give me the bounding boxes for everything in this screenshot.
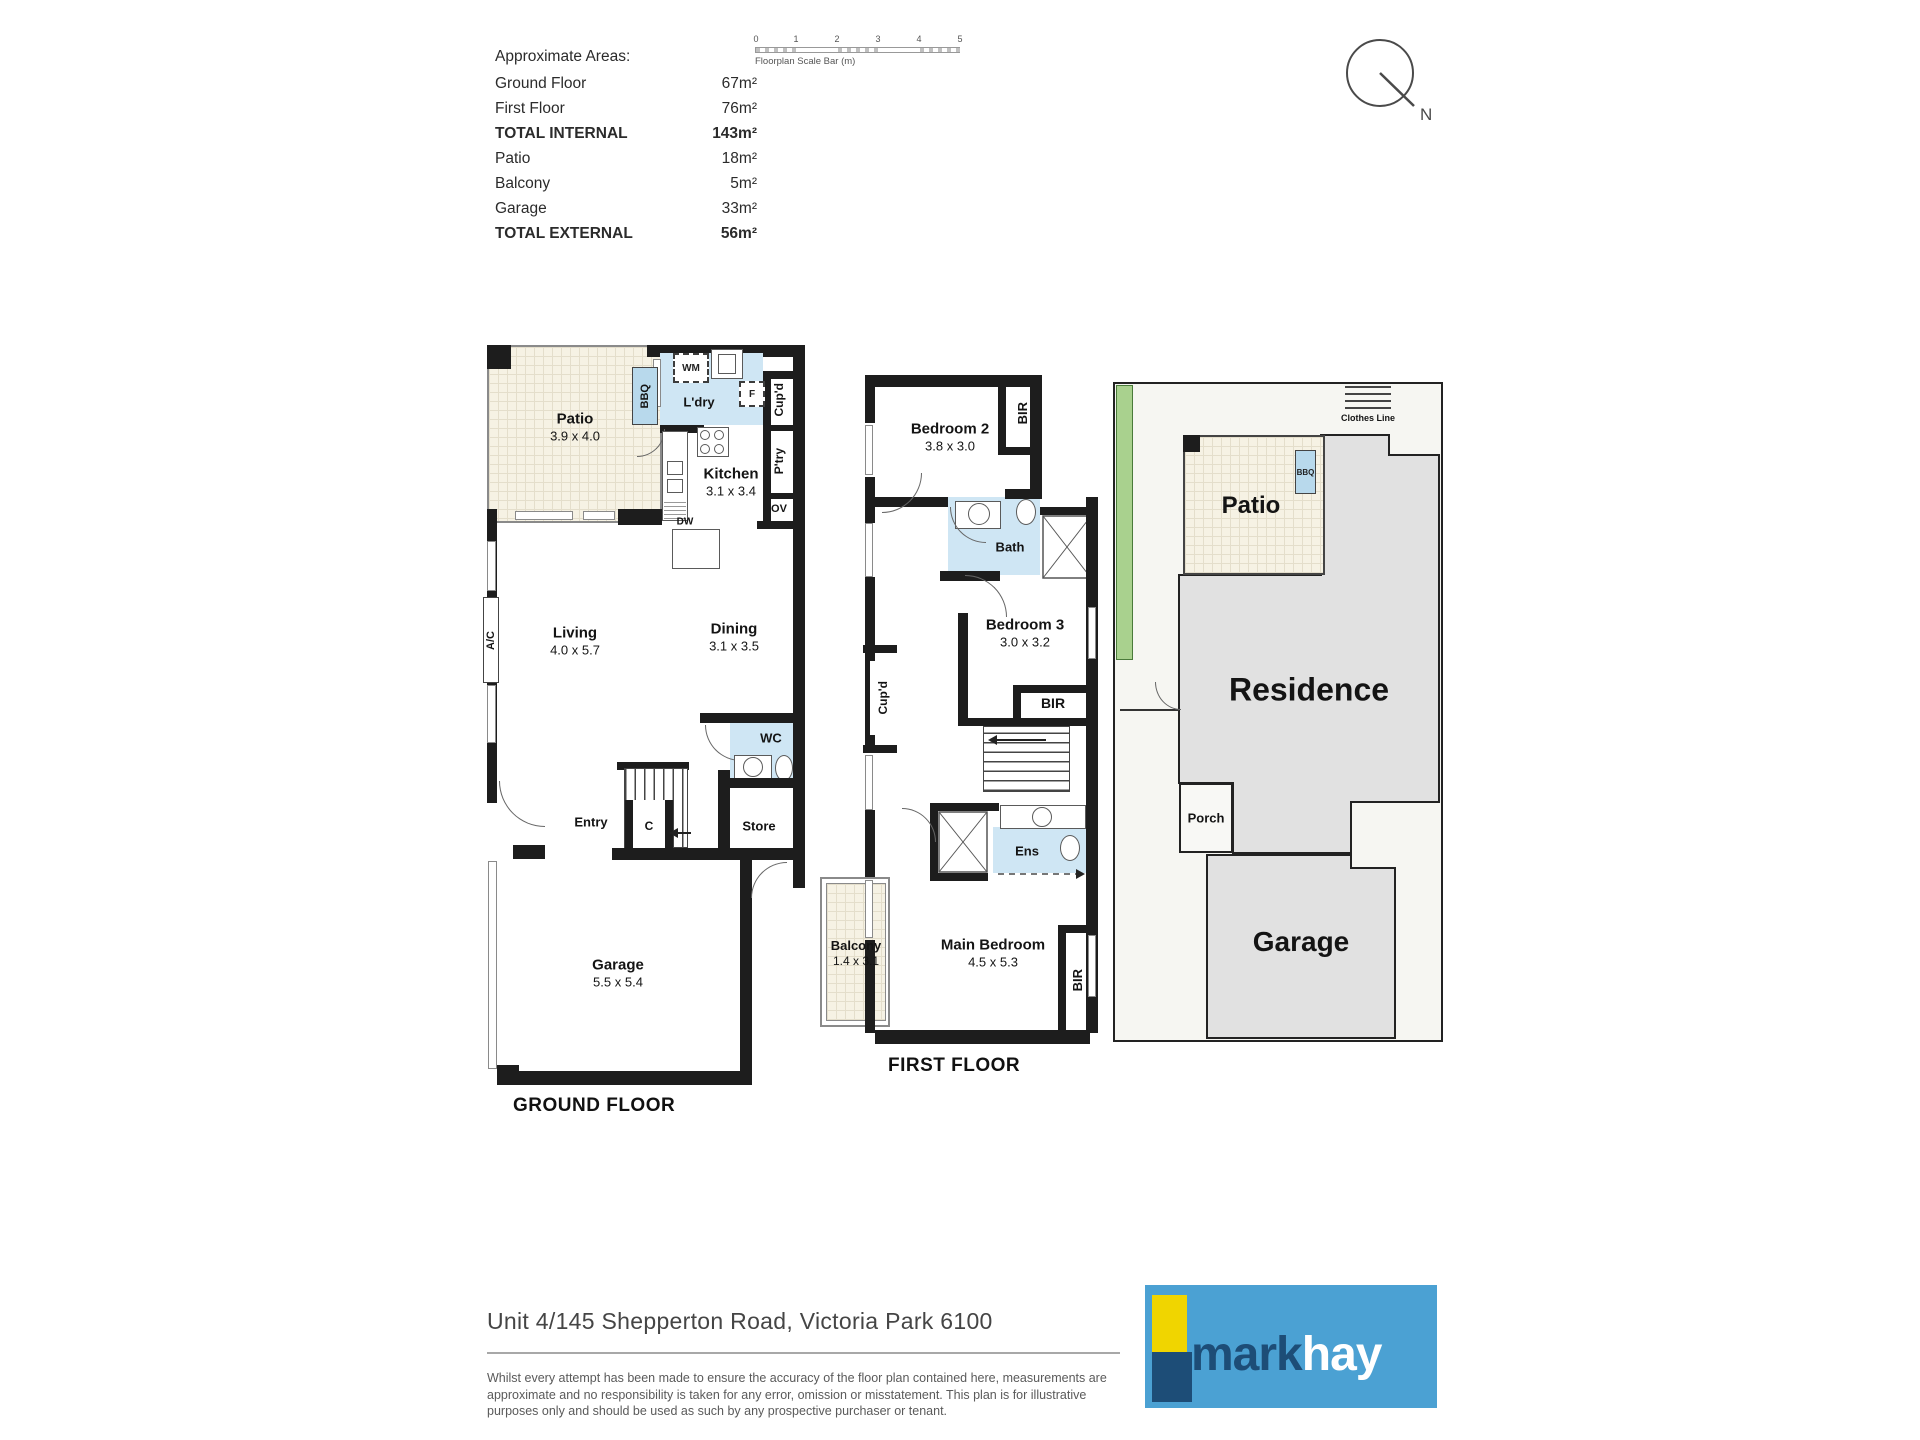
room-label-wc: WC: [760, 731, 782, 746]
wall: [1005, 489, 1042, 499]
site-wall: [1120, 709, 1179, 711]
wall: [507, 1071, 752, 1085]
wall: [1058, 925, 1088, 933]
shower: [1042, 515, 1092, 579]
room-label-main-bedroom: Main Bedroom 4.5 x 5.3: [941, 937, 1045, 970]
room-label-oven: OV: [771, 503, 787, 515]
areas-row-total-external: TOTAL EXTERNAL56m²: [495, 225, 757, 243]
room-label-cupboard: Cup'd: [766, 377, 792, 423]
scale-bar-segment: [756, 48, 797, 52]
room-label-patio: Patio 3.9 x 4.0: [550, 411, 600, 444]
toilet: [1060, 835, 1080, 861]
window: [583, 511, 615, 520]
north-compass-icon: N: [1338, 30, 1448, 130]
wall: [958, 718, 1090, 726]
balcony-door: [865, 880, 873, 938]
sink-bowl: [667, 461, 683, 475]
disclaimer-text: Whilst every attempt has been made to en…: [487, 1370, 1135, 1420]
garage-door: [488, 861, 497, 1069]
site-bbq-unit: BBQ: [1295, 450, 1316, 494]
window: [1088, 607, 1096, 659]
kitchen-island: [672, 529, 720, 569]
room-label-bath: Bath: [996, 540, 1025, 555]
site-porch-label: Porch: [1188, 811, 1225, 826]
wall: [497, 1065, 519, 1085]
scale-bar-segment: [920, 48, 961, 52]
room-label-laundry: L'dry: [683, 395, 714, 410]
wall: [700, 713, 805, 723]
wall: [1058, 925, 1066, 1033]
patio-post: [1183, 435, 1200, 452]
room-label-bir: BIR: [1066, 937, 1088, 1023]
room-label-living: Living 4.0 x 5.7: [550, 625, 600, 658]
wall: [612, 848, 752, 860]
site-patio-label: Patio: [1222, 492, 1281, 520]
room-label-kitchen: Kitchen 3.1 x 3.4: [703, 466, 758, 499]
bbq-unit: BBQ: [632, 367, 658, 425]
wall: [793, 848, 805, 888]
burner: [700, 444, 710, 454]
fridge-box: F: [739, 381, 765, 407]
areas-panel: Approximate Areas: Ground Floor67m² Firs…: [495, 48, 757, 250]
property-address: Unit 4/145 Shepperton Road, Victoria Par…: [487, 1308, 993, 1335]
room-label-closet: C: [645, 819, 654, 833]
appliance-label-dw: DW: [677, 517, 694, 528]
logo-yellow-block: [1152, 1295, 1187, 1352]
room-label-balcony: Balcony 1.4 x 3.1: [831, 938, 882, 968]
ensuite-basin-bowl: [1032, 807, 1052, 827]
room-label-pantry: P'try: [766, 433, 792, 489]
air-conditioner-unit: A/C: [483, 597, 499, 683]
wall: [1030, 375, 1042, 497]
floorplan-page: Approximate Areas: Ground Floor67m² Firs…: [0, 0, 1920, 1440]
site-plan: Clothes Line BBQ Patio Residence Porch G…: [1113, 382, 1443, 1042]
wall: [757, 521, 805, 529]
areas-row: Ground Floor67m²: [495, 75, 757, 93]
stair-arrow: [669, 828, 678, 838]
areas-row: Garage33m²: [495, 200, 757, 218]
scale-bar-label: Floorplan Scale Bar (m): [755, 56, 855, 67]
areas-row: Balcony5m²: [495, 175, 757, 193]
room-label-bedroom2: Bedroom 2 3.8 x 3.0: [911, 421, 989, 454]
areas-title: Approximate Areas:: [495, 48, 757, 66]
logo-wordmark: markhay: [1191, 1327, 1381, 1382]
wall: [763, 493, 793, 499]
door-arc: [965, 575, 1007, 617]
wall: [730, 778, 805, 788]
patio-post: [487, 345, 511, 369]
stair-arrow-stem: [677, 832, 691, 834]
wall: [865, 810, 875, 878]
window: [487, 541, 496, 591]
room-label-store: Store: [742, 819, 775, 834]
burner: [714, 444, 724, 454]
clothes-line-icon: [1345, 386, 1391, 411]
ground-floor-plan: WM F L'dry BBQ DW Kitchen 3.1 x 3.4 Cup'…: [487, 345, 805, 1135]
wall: [763, 425, 793, 431]
room-label-bedroom3: Bedroom 3 3.0 x 3.2: [986, 617, 1064, 650]
wc-basin-bowl: [743, 757, 763, 777]
stair-arrow: [988, 735, 997, 745]
logo-navy-block: [1152, 1352, 1192, 1402]
first-floor-plan: Bedroom 2 3.8 x 3.0 BIR Bath Bedroom 3 3…: [820, 375, 1098, 1085]
wall: [958, 613, 968, 721]
burner: [700, 430, 710, 440]
site-residence-label: Residence: [1229, 672, 1389, 709]
shower: [938, 811, 988, 873]
window: [1088, 935, 1096, 997]
first-floor-title: FIRST FLOOR: [888, 1055, 1020, 1077]
wall: [937, 803, 999, 811]
entry-door-arc: [499, 781, 545, 827]
areas-row-total-internal: TOTAL INTERNAL143m²: [495, 125, 757, 143]
room-label-garage: Garage 5.5 x 5.4: [592, 957, 644, 990]
laundry-trough-bowl: [718, 354, 736, 374]
wall: [1013, 685, 1090, 693]
sink-bowl: [667, 479, 683, 493]
wall: [718, 770, 730, 848]
wall: [625, 800, 633, 848]
door-arc: [751, 862, 787, 898]
window: [865, 755, 873, 810]
scale-bar-rule: [755, 47, 960, 53]
wall: [930, 873, 988, 881]
site-garage-label: Garage: [1253, 926, 1350, 958]
stair-arrow-stem: [996, 739, 1046, 741]
wall: [865, 375, 875, 423]
wall: [998, 377, 1006, 455]
window: [515, 511, 573, 520]
washing-machine-box: WM: [673, 353, 709, 383]
door-arc: [882, 473, 922, 513]
wall: [1013, 685, 1021, 718]
window: [865, 523, 873, 577]
agency-logo: markhay: [1145, 1285, 1437, 1408]
wall: [930, 803, 938, 881]
clothes-line-label: Clothes Line: [1341, 413, 1395, 423]
ground-floor-title: GROUND FLOOR: [513, 1095, 675, 1117]
scale-bar-segment: [838, 48, 879, 52]
footer-divider: [487, 1352, 1120, 1354]
wall: [665, 800, 673, 848]
wall: [618, 509, 662, 525]
window: [487, 685, 496, 743]
wall: [865, 577, 875, 652]
room-label-ensuite: Ens: [1015, 844, 1039, 859]
sliding-door-line: [998, 873, 1078, 875]
toilet: [1016, 499, 1036, 525]
floorplan-scale-bar: 0 1 2 3 4 5 Floorplan Scale Bar (m): [753, 34, 965, 70]
door-arrow: [1076, 869, 1085, 879]
room-label-bir: BIR: [1041, 695, 1065, 711]
areas-row: Patio18m²: [495, 150, 757, 168]
north-label: N: [1420, 105, 1432, 124]
burner: [714, 430, 724, 440]
room-label-dining: Dining 3.1 x 3.5: [709, 621, 759, 654]
areas-row: First Floor76m²: [495, 100, 757, 118]
wall: [875, 1030, 1090, 1044]
room-label-entry: Entry: [574, 815, 607, 830]
wall: [513, 845, 545, 859]
wall: [865, 477, 875, 523]
window: [865, 425, 873, 475]
room-label-cupboard: Cup'd: [870, 661, 896, 735]
